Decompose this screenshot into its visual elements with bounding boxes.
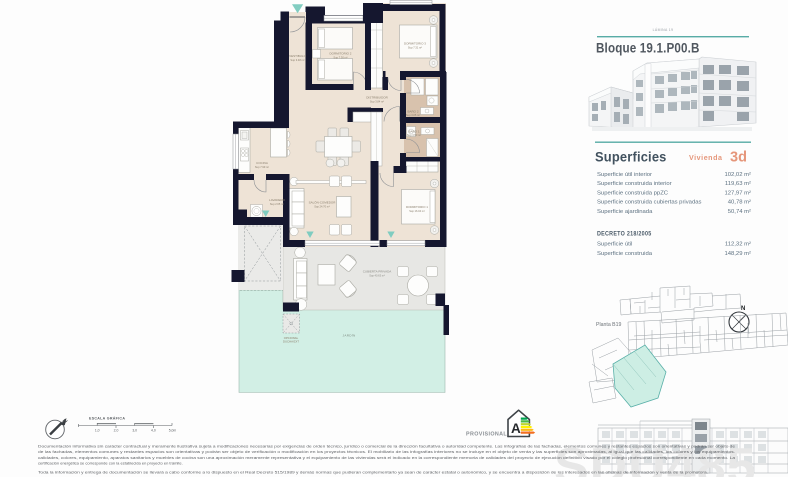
svg-text:BAÑO 2: BAÑO 2 xyxy=(407,109,418,114)
svg-text:CUBIERTA PRIVADA: CUBIERTA PRIVADA xyxy=(363,270,392,274)
svg-text:Superficie ajardinada: Superficie ajardinada xyxy=(597,209,653,215)
svg-text:DORMITORIO 2: DORMITORIO 2 xyxy=(330,52,352,56)
svg-text:119,63 m²: 119,63 m² xyxy=(725,181,751,187)
svg-text:Superficies: Superficies xyxy=(595,149,667,164)
svg-text:PROVISIONAL: PROVISIONAL xyxy=(466,432,507,438)
svg-text:certificación energética se co: certificación energética se corresponde … xyxy=(38,461,183,466)
svg-text:112,32 m²: 112,32 m² xyxy=(725,242,751,248)
svg-text:A: A xyxy=(511,421,521,436)
svg-text:Sup 2.65 m²: Sup 2.65 m² xyxy=(270,202,284,206)
svg-text:Superficie construida ppZC: Superficie construida ppZC xyxy=(597,190,669,196)
svg-text:Superficie útil: Superficie útil xyxy=(597,242,632,248)
svg-text:Sup 40.63 m²: Sup 40.63 m² xyxy=(369,274,385,278)
svg-text:Sup 24.70 m²: Sup 24.70 m² xyxy=(314,205,330,209)
svg-text:DORMITORIO 3: DORMITORIO 3 xyxy=(404,42,426,46)
svg-text:1,0: 1,0 xyxy=(95,429,100,433)
svg-text:Sup 7.30 m²: Sup 7.30 m² xyxy=(333,56,347,60)
svg-text:127,97 m²: 127,97 m² xyxy=(724,190,751,196)
svg-text:50,74 m²: 50,74 m² xyxy=(728,209,751,215)
svg-text:LAVADERO: LAVADERO xyxy=(269,198,286,202)
svg-text:de las fachadas, elementos com: de las fachadas, elementos comunes y res… xyxy=(38,449,735,454)
svg-text:148,29 m²: 148,29 m² xyxy=(724,251,751,257)
svg-text:Documentación informativa sin: Documentación informativa sin carácter c… xyxy=(38,443,736,448)
svg-text:40,78 m²: 40,78 m² xyxy=(728,200,751,206)
svg-text:Sup 16.04 m²: Sup 16.04 m² xyxy=(409,209,425,213)
svg-text:SALÓN-COMEDOR: SALÓN-COMEDOR xyxy=(309,200,337,205)
svg-text:calidades, colores, equipamien: calidades, colores, equipamiento, aparat… xyxy=(38,455,736,460)
svg-text:Bloque 19.1.P00.B: Bloque 19.1.P00.B xyxy=(596,39,700,55)
svg-text:DISTRIBUIDOR: DISTRIBUIDOR xyxy=(366,96,388,100)
svg-text:Sup 7.99 m²: Sup 7.99 m² xyxy=(255,165,269,169)
svg-text:Sup 3.48 m²: Sup 3.48 m² xyxy=(290,58,304,62)
svg-text:3,0: 3,0 xyxy=(132,429,137,433)
svg-text:Superficie construida: Superficie construida xyxy=(597,251,653,257)
svg-text:Superficie útil interior: Superficie útil interior xyxy=(597,172,652,178)
svg-text:COCINA: COCINA xyxy=(256,161,268,165)
svg-text:Sup 3.50 m²: Sup 3.50 m² xyxy=(407,133,421,137)
svg-text:Toda la información y entrega: Toda la información y entrega de documen… xyxy=(38,470,708,475)
svg-text:Superficie construida interior: Superficie construida interior xyxy=(597,181,672,187)
svg-text:Sup 3.05 m²: Sup 3.05 m² xyxy=(406,113,420,117)
svg-text:5,0m: 5,0m xyxy=(169,429,177,433)
svg-text:DORMITORIO 1: DORMITORIO 1 xyxy=(406,205,428,209)
svg-text:102,02 m²: 102,02 m² xyxy=(724,172,751,178)
svg-text:LÁMINA 19: LÁMINA 19 xyxy=(653,28,674,32)
svg-text:Vivienda: Vivienda xyxy=(689,154,722,162)
svg-text:N: N xyxy=(741,306,745,312)
svg-text:4,0: 4,0 xyxy=(151,429,156,433)
svg-text:DECRETO 218/2005: DECRETO 218/2005 xyxy=(597,231,651,237)
svg-text:Sup 7.31 m²: Sup 7.31 m² xyxy=(408,46,422,50)
svg-text:JARDÍN: JARDÍN xyxy=(343,334,356,338)
svg-text:Superficie construida cubierta: Superficie construida cubiertas privadas xyxy=(597,200,702,206)
svg-text:DUCHA EXT: DUCHA EXT xyxy=(283,340,299,344)
svg-text:Planta B19: Planta B19 xyxy=(596,322,621,328)
svg-text:VESTIBULO: VESTIBULO xyxy=(289,54,307,58)
svg-text:ESCALA GRÁFICA: ESCALA GRÁFICA xyxy=(89,416,125,421)
svg-text:Sup 3.84 m²: Sup 3.84 m² xyxy=(370,100,384,104)
svg-text:BAÑO 1: BAÑO 1 xyxy=(408,129,419,134)
svg-text:3d: 3d xyxy=(730,150,747,166)
svg-text:2,0: 2,0 xyxy=(114,429,119,433)
